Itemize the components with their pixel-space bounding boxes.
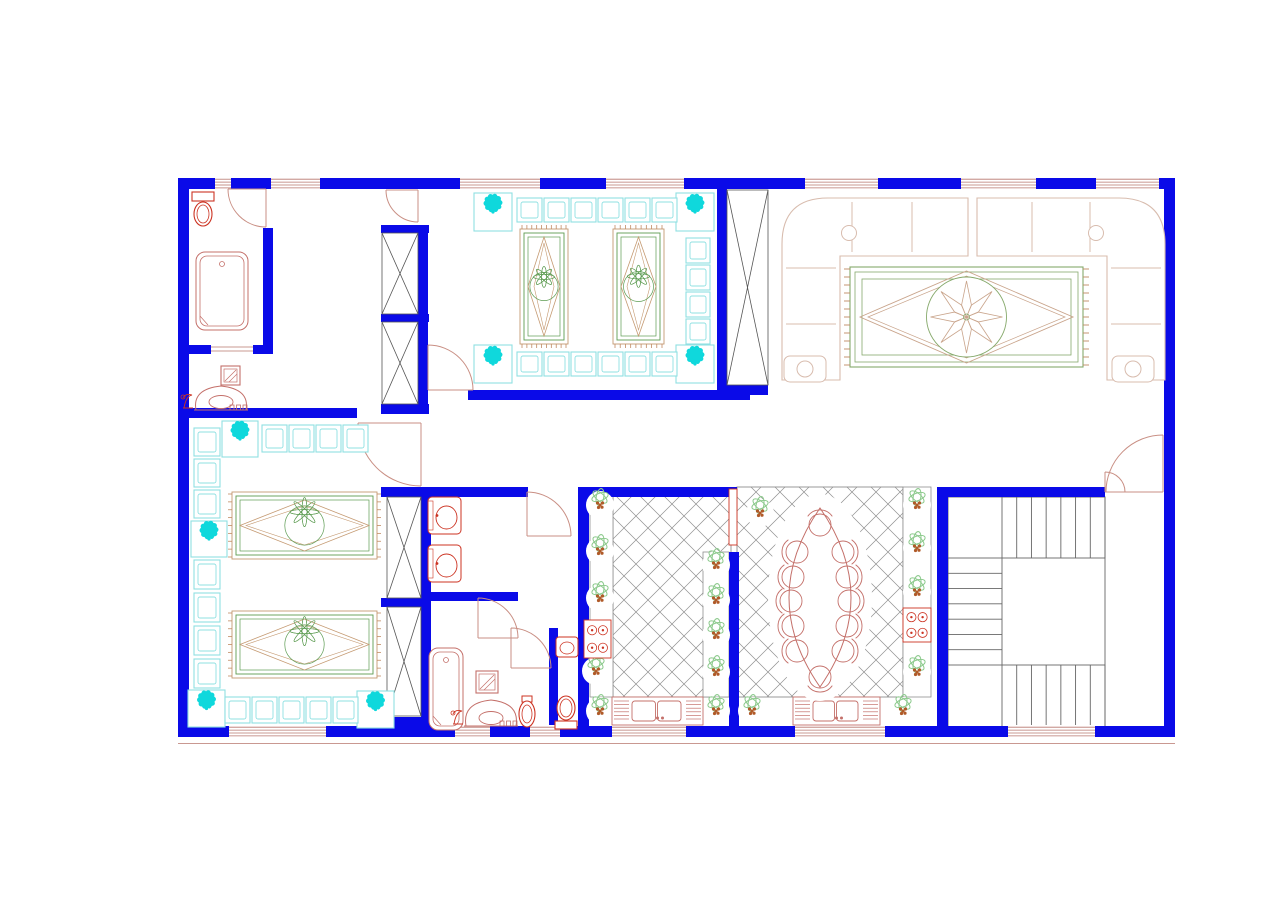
plant-core	[717, 707, 720, 710]
wall-majlis1-east	[717, 189, 727, 390]
plant-core	[596, 501, 599, 504]
plant-core	[597, 506, 600, 509]
flower-center	[491, 210, 494, 213]
sink-tap	[840, 717, 843, 720]
plant-core	[757, 514, 760, 517]
wall-hall-south	[381, 487, 528, 497]
plant-core	[597, 599, 600, 602]
plant-core	[596, 672, 599, 675]
plant-core	[716, 636, 719, 639]
plant-core	[592, 667, 595, 670]
stove-burner-center	[921, 616, 923, 618]
floor-plan-svg	[0, 0, 1280, 897]
plant-core	[914, 506, 917, 509]
plant-core	[917, 593, 920, 596]
carpet	[232, 611, 377, 678]
plant-core	[597, 667, 600, 670]
plant-core	[596, 594, 599, 597]
wall-washroom-north-b	[253, 345, 273, 354]
sofa-corner-lamp	[842, 226, 857, 241]
plant-core	[601, 547, 604, 550]
plant-core	[918, 588, 921, 591]
wall-majlis2-north	[189, 408, 357, 418]
plant-core	[904, 707, 907, 710]
background	[0, 0, 1280, 897]
wall-washroom-north-a	[189, 345, 211, 354]
plant-core	[713, 601, 716, 604]
plant-core	[753, 707, 756, 710]
plant-core	[713, 712, 716, 715]
plant-core	[913, 668, 916, 671]
wall-bathroom1-east	[263, 228, 273, 345]
wall-stairhall-north	[937, 487, 1105, 497]
plant-core	[600, 552, 603, 555]
plant-core	[914, 673, 917, 676]
wall-closet1-mid-cap	[381, 314, 429, 322]
flower-center	[207, 537, 210, 540]
plant-core	[716, 673, 719, 676]
sink-tap	[656, 717, 659, 720]
stove-burner-center	[910, 616, 912, 618]
plant-core	[748, 707, 751, 710]
plant-core	[900, 712, 903, 715]
basin-tap	[436, 514, 439, 517]
plant-core	[712, 707, 715, 710]
plant-core	[593, 672, 596, 675]
plant-core	[601, 594, 604, 597]
plant-core	[717, 668, 720, 671]
plant-core	[596, 707, 599, 710]
plant-core	[713, 673, 716, 676]
plant-core	[597, 712, 600, 715]
plant-core	[716, 601, 719, 604]
dining-chair	[836, 615, 858, 637]
wall-kitchen-dining-partition	[729, 552, 739, 727]
stove	[584, 620, 611, 658]
plant-core	[749, 712, 752, 715]
flower-center	[238, 437, 241, 440]
carpet	[232, 492, 377, 559]
wall-closet1-north-cap	[381, 225, 429, 233]
plant-core	[597, 552, 600, 555]
stove-burner-center	[921, 632, 923, 634]
sofa-end-table	[784, 356, 826, 382]
plant-core	[600, 712, 603, 715]
plant-core	[596, 547, 599, 550]
flower-center	[205, 707, 208, 710]
plant-core	[913, 501, 916, 504]
stove-burner-center	[591, 629, 593, 631]
plant-core	[917, 506, 920, 509]
wall-ablution-south	[431, 592, 518, 601]
dining-chair	[838, 590, 860, 612]
plant-core	[716, 566, 719, 569]
plant-core	[913, 588, 916, 591]
floor-plan-canvas	[0, 0, 1280, 897]
dining-chair	[836, 566, 858, 588]
plant-core	[761, 509, 764, 512]
carpet	[520, 229, 568, 344]
toilet-tank	[192, 192, 214, 201]
plant-core	[914, 593, 917, 596]
wall-hall-closet-mid-cap	[381, 598, 431, 607]
plant-core	[600, 506, 603, 509]
stove-burner-center	[910, 632, 912, 634]
plant-core	[918, 501, 921, 504]
plant-core	[717, 596, 720, 599]
dining-chair	[780, 590, 802, 612]
flower-center	[693, 210, 696, 213]
dining-chair	[809, 514, 831, 536]
plant-core	[913, 544, 916, 547]
toilet-tank	[555, 721, 577, 729]
plant-core	[899, 707, 902, 710]
flower-center	[491, 362, 494, 365]
stove-burner-center	[591, 647, 593, 649]
flower-center	[693, 362, 696, 365]
plant-core	[712, 631, 715, 634]
serving-niche	[729, 489, 737, 545]
stove-burner-center	[602, 629, 604, 631]
sink-tap	[835, 717, 838, 720]
wall-dining-east	[937, 487, 948, 737]
wall-majlis1-south	[468, 390, 750, 400]
plant-core	[600, 599, 603, 602]
stove	[903, 608, 931, 642]
plant-core	[917, 673, 920, 676]
wall-duct-south-cap	[717, 385, 768, 395]
sink-tap	[661, 717, 664, 720]
stove-burner-center	[602, 647, 604, 649]
plant-core	[712, 561, 715, 564]
basin-tap	[436, 562, 439, 565]
sofa-end-table	[1112, 356, 1154, 382]
plant-core	[601, 707, 604, 710]
plant-core	[903, 712, 906, 715]
dining-chair	[809, 666, 831, 688]
wall-outer-left	[178, 178, 189, 737]
plant-core	[712, 668, 715, 671]
plant-core	[713, 566, 716, 569]
plant-core	[914, 549, 917, 552]
flower-center	[374, 708, 377, 711]
plant-core	[756, 509, 759, 512]
plant-core	[717, 561, 720, 564]
plant-core	[712, 596, 715, 599]
plant-core	[717, 631, 720, 634]
dining-chair	[782, 615, 804, 637]
dining-chair	[782, 566, 804, 588]
plant-core	[752, 712, 755, 715]
plant-core	[601, 501, 604, 504]
sofa-corner-lamp	[1089, 226, 1104, 241]
plant-core	[713, 636, 716, 639]
plant-core	[760, 514, 763, 517]
plant-core	[918, 544, 921, 547]
plant-core	[918, 668, 921, 671]
wall-kitchen-west	[578, 487, 589, 737]
wall-outer-right	[1164, 178, 1175, 737]
plant-core	[716, 712, 719, 715]
bathtub	[196, 252, 248, 330]
plant-core	[917, 549, 920, 552]
